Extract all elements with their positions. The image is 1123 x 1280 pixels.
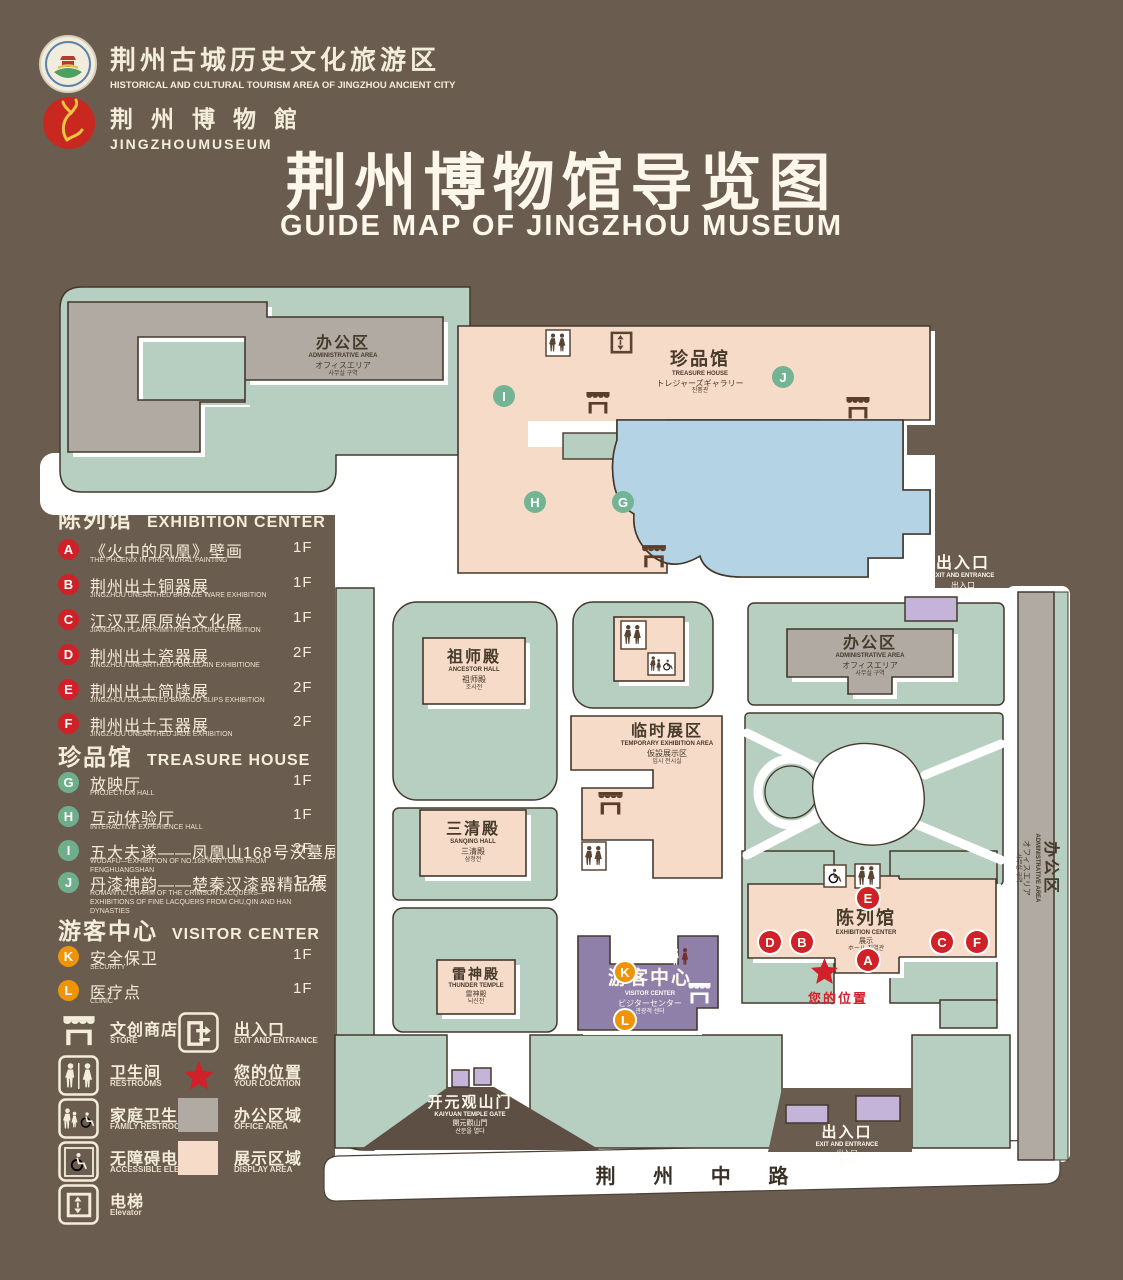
map-marker-h: H bbox=[524, 491, 546, 513]
family-restroom-icon bbox=[648, 653, 675, 675]
ne-entrance-building bbox=[905, 597, 957, 621]
label-jp: 祖师殿 bbox=[447, 675, 501, 685]
temporary-exhibition-label: 临时展区 TEMPORARY EXHIBITION AREA 仮設展示区 임시 … bbox=[621, 722, 713, 766]
guide-map-page: { "header": { "tourism_logo": { "zh": "荆… bbox=[0, 0, 1123, 1280]
label-zh: 临时展区 bbox=[621, 722, 713, 741]
label-jp: オフィスエリア bbox=[309, 361, 378, 371]
map-marker-c: C bbox=[931, 931, 953, 953]
label-en: EXIT AND ENTRANCE bbox=[816, 1142, 879, 1149]
map-marker-b: B bbox=[791, 931, 813, 953]
treasure-house-label: 珍品馆 TREASURE HOUSE トレジャーズギャラリー 진품관 bbox=[656, 349, 743, 396]
label-jp: ビジターセンター bbox=[608, 999, 692, 1009]
label-en: EXIT AND ENTRANCE bbox=[932, 573, 995, 580]
label-en: TREASURE HOUSE bbox=[656, 371, 743, 378]
map-marker-e: E bbox=[857, 887, 879, 909]
label-kr: 뇌신전 bbox=[448, 999, 503, 1006]
label-en: TEMPORARY EXHIBITION AREA bbox=[621, 741, 713, 748]
label-kr: 임시 전시실 bbox=[621, 759, 713, 766]
label-jp: トレジャーズギャラリー bbox=[656, 379, 743, 389]
label-zh: 办公区 bbox=[1040, 834, 1060, 903]
map-marker-k: K bbox=[615, 962, 635, 982]
label-kr: 진품관 bbox=[656, 388, 743, 395]
restroom-icon bbox=[621, 621, 646, 649]
label-zh: 陈列馆 bbox=[836, 908, 897, 930]
label-en: KAIYUAN TEMPLE GATE bbox=[427, 1112, 512, 1119]
administrative-strip-label: 办公区 ADMINISTRATIVE AREA オフィスエリア 사무실 구역 bbox=[1014, 834, 1060, 903]
label-jp: 展示 bbox=[836, 938, 897, 946]
label-jp: 開元觀山門 bbox=[427, 1120, 512, 1128]
map-marker-l: L bbox=[615, 1010, 635, 1030]
label-kr: 사무실 구역 bbox=[309, 371, 378, 378]
label-jp: 出入口 bbox=[932, 581, 995, 591]
label-en: VISITOR CENTER bbox=[608, 991, 692, 998]
label-kr: 사무실 구역 bbox=[836, 671, 905, 678]
restroom-icon bbox=[582, 842, 606, 870]
administrative-area-e-label: 办公区 ADMINISTRATIVE AREA オフィスエリア 사무실 구역 bbox=[836, 634, 905, 678]
ne-entrance-label: 出入口 EXIT AND ENTRANCE 出入口 출입구 bbox=[932, 554, 995, 598]
kaiyuan-gate-label: 开元观山门 KAIYUAN TEMPLE GATE 開元觀山門 산문을 열다 bbox=[427, 1094, 512, 1136]
label-en: ANCESTOR HALL bbox=[447, 667, 501, 674]
map-marker-d: D bbox=[759, 931, 781, 953]
label-zh: 珍品馆 bbox=[656, 349, 743, 371]
restroom-icon bbox=[546, 330, 570, 356]
label-kr: 산문을 열다 bbox=[427, 1129, 512, 1136]
label-en: ADMINISTRATIVE AREA bbox=[309, 353, 378, 360]
jingzhou-middle-road-label: 荆 州 中 路 bbox=[596, 1160, 805, 1189]
thunder-temple-label: 雷神殿 THUNDER TEMPLE 雷神殿 뇌신전 bbox=[448, 966, 503, 1007]
label-jp: 三清殿 bbox=[446, 847, 500, 857]
label-jp: オフィスエリア bbox=[1022, 834, 1032, 903]
label-zh: 出入口 bbox=[932, 554, 995, 573]
accessible-elevator-icon bbox=[824, 865, 846, 887]
map-marker-i: I bbox=[493, 385, 515, 407]
label-zh: 祖师殿 bbox=[447, 648, 501, 667]
label-zh: 出入口 bbox=[816, 1124, 879, 1142]
south-entrance-label: 出入口 EXIT AND ENTRANCE 出入口 출입구 bbox=[816, 1124, 879, 1166]
label-jp: オフィスエリア bbox=[836, 661, 905, 671]
label-en: THUNDER TEMPLE bbox=[448, 983, 503, 990]
label-zh: 开元观山门 bbox=[427, 1094, 512, 1112]
label-zh: 办公区 bbox=[309, 334, 378, 353]
label-zh: 雷神殿 bbox=[448, 966, 503, 983]
ancestor-hall-label: 祖师殿 ANCESTOR HALL 祖师殿 조사전 bbox=[447, 648, 501, 692]
restroom-icon bbox=[855, 864, 880, 888]
label-en: EXHIBITION CENTER bbox=[836, 930, 897, 937]
label-kr: 출입구 bbox=[932, 591, 995, 598]
sanqing-hall-label: 三清殿 SANQING HALL 三清殿 삼청전 bbox=[446, 820, 500, 864]
label-en: ADMINISTRATIVE AREA bbox=[1033, 834, 1041, 903]
map-marker-a: A bbox=[857, 949, 879, 971]
label-kr: 삼청전 bbox=[446, 857, 500, 864]
administrative-area-nw-label: 办公区 ADMINISTRATIVE AREA オフィスエリア 사무실 구역 bbox=[309, 334, 378, 378]
map-marker-f: F bbox=[966, 931, 988, 953]
map-marker-g: G bbox=[612, 491, 634, 513]
your-location-label: 您的位置 bbox=[808, 988, 868, 1007]
map-marker-j: J bbox=[772, 366, 794, 388]
label-kr: 조사전 bbox=[447, 685, 501, 692]
label-en: SANQING HALL bbox=[446, 839, 500, 846]
exhibition-center-label: 陈列馆 EXHIBITION CENTER 展示 ホール 진열관 bbox=[836, 908, 897, 953]
label-zh: 三清殿 bbox=[446, 820, 500, 839]
museum-map-canvas bbox=[0, 0, 1123, 1280]
label-kr: 사무실 구역 bbox=[1014, 834, 1022, 903]
label-jp: 仮設展示区 bbox=[621, 749, 713, 759]
label-kr: 출입구 bbox=[816, 1159, 879, 1166]
pond bbox=[613, 420, 930, 577]
label-zh: 办公区 bbox=[836, 634, 905, 653]
label-en: ADMINISTRATIVE AREA bbox=[836, 653, 905, 660]
label-jp: 出入口 bbox=[816, 1150, 879, 1158]
